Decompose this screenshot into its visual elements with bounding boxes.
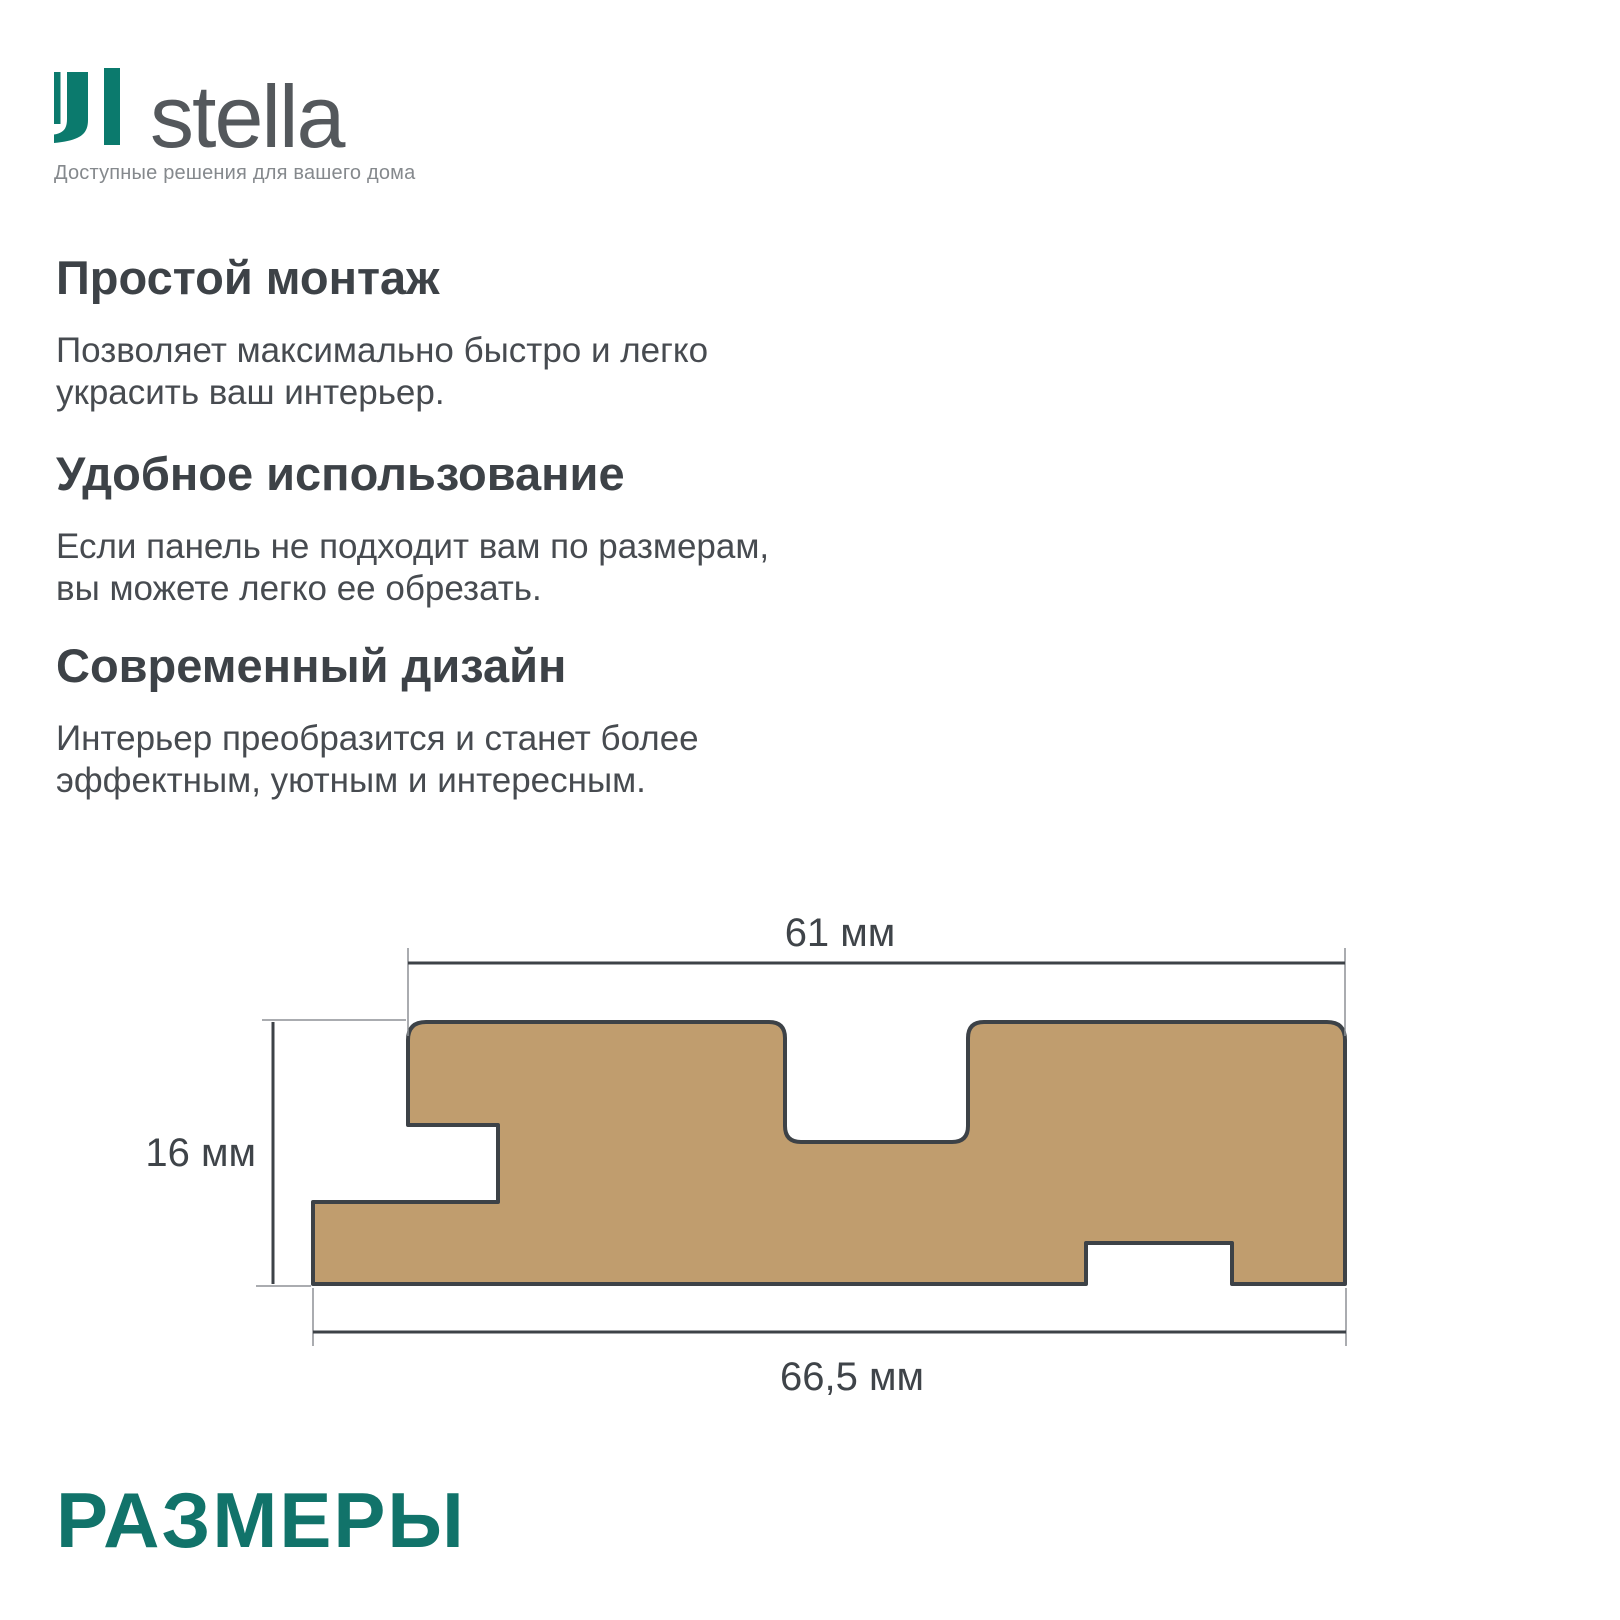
panel-cross-section-diagram: 61 мм 16 мм 66,5 мм [0,0,1620,1620]
dim-label-height: 16 мм [145,1131,256,1175]
infographic-page: stella Доступные решения для вашего дома… [0,0,1620,1620]
dim-label-top-width: 61 мм [785,911,896,955]
panel-profile-shape [313,1022,1345,1284]
section-title-sizes: РАЗМЕРЫ [56,1480,466,1560]
dim-label-bottom-width: 66,5 мм [780,1355,924,1399]
